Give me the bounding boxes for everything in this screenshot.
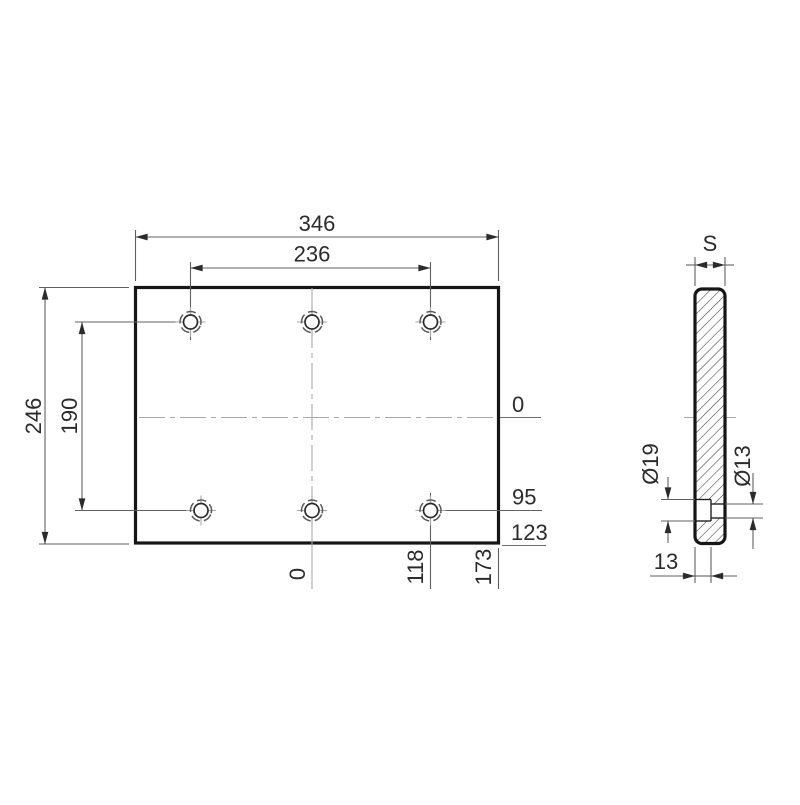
counterbore-section: [697, 500, 712, 522]
ordinate-bottom-118: 118: [403, 549, 428, 584]
front-view: 346 236 246 190 0 95 123 0: [21, 211, 736, 589]
dim-hole-diameter-label: Ø13: [730, 445, 755, 487]
dim-overall-height-label: 246: [21, 398, 46, 435]
technical-drawing-page: 346 236 246 190 0 95 123 0: [0, 0, 800, 800]
dim-hole-spacing-x-label: 236: [294, 242, 331, 267]
plate-engineering-drawing: 346 236 246 190 0 95 123 0: [0, 0, 800, 800]
ordinates-bottom: 0 118 173: [285, 548, 499, 589]
ordinates-right: 0 95 123: [500, 392, 548, 546]
dim-hole-spacing-x: 236: [191, 242, 431, 269]
through-hole-section: [711, 504, 724, 518]
dim-hole-spacing-y: 190: [57, 322, 82, 511]
dim-thickness-label: S: [703, 231, 718, 256]
ordinate-right-0: 0: [512, 392, 524, 417]
ordinate-bottom-0: 0: [285, 568, 310, 580]
dim-hole-spacing-y-label: 190: [57, 398, 82, 435]
ordinate-right-123: 123: [511, 520, 548, 545]
ordinate-right-95: 95: [512, 485, 536, 510]
ordinate-bottom-173: 173: [471, 549, 496, 586]
dim-hole-diameter: Ø13: [725, 445, 763, 549]
dim-counterbore-diameter: Ø19: [638, 443, 695, 543]
plate-section: [695, 289, 725, 544]
dim-counterbore-diameter-label: Ø19: [638, 443, 663, 485]
dim-overall-width-label: 346: [299, 211, 336, 236]
dim-counterbore-depth-label: 13: [654, 549, 678, 574]
side-view: S Ø19 Ø13 13: [638, 231, 763, 583]
dim-thickness: S: [686, 231, 734, 286]
dim-counterbore-depth: 13: [650, 547, 737, 583]
